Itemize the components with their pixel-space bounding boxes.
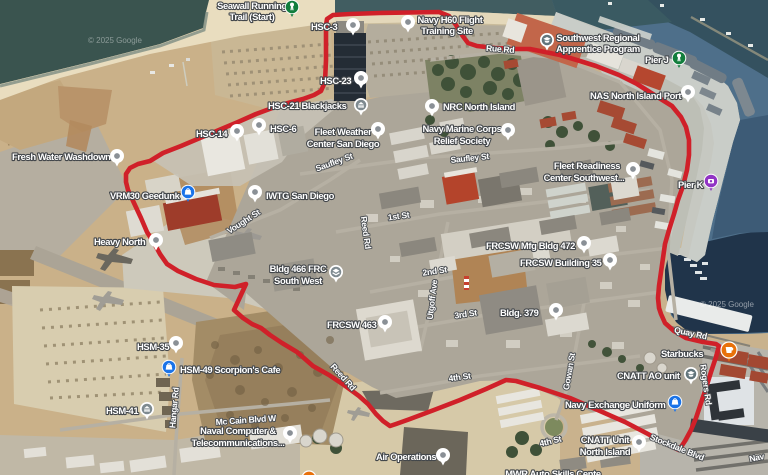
svg-text:HSM-35: HSM-35	[137, 341, 169, 352]
svg-text:Pier K: Pier K	[678, 179, 704, 190]
svg-text:Air Operations: Air Operations	[376, 451, 436, 462]
svg-text:HSC-23: HSC-23	[320, 75, 351, 86]
svg-text:© 2025 Google: © 2025 Google	[88, 36, 142, 45]
svg-text:Bldg 466 FRC: Bldg 466 FRC	[270, 263, 327, 274]
svg-text:Naval Computer &: Naval Computer &	[200, 425, 276, 436]
svg-text:Relief Society: Relief Society	[434, 135, 492, 146]
svg-text:NRC North Island: NRC North Island	[443, 101, 516, 112]
svg-text:IWTG San Diego: IWTG San Diego	[266, 190, 335, 201]
svg-text:Starbucks: Starbucks	[661, 348, 703, 359]
svg-text:Heavy North: Heavy North	[94, 236, 146, 247]
svg-text:HSC-3: HSC-3	[311, 21, 338, 32]
svg-text:Fleet Readiness: Fleet Readiness	[554, 160, 620, 171]
svg-text:HSM-41: HSM-41	[106, 405, 138, 416]
svg-text:Center Southwest...: Center Southwest...	[544, 172, 625, 183]
svg-text:HSC-6: HSC-6	[270, 123, 297, 134]
svg-text:© 2025 Google: © 2025 Google	[700, 300, 754, 309]
svg-text:NAS North Island Port: NAS North Island Port	[590, 90, 681, 101]
svg-text:VRM30 Geedunk: VRM30 Geedunk	[110, 190, 181, 201]
svg-text:South West: South West	[274, 275, 322, 286]
svg-text:Center San Diego: Center San Diego	[307, 138, 380, 149]
svg-text:MWR Auto Skills Cente: MWR Auto Skills Cente	[505, 468, 601, 475]
svg-text:North Island: North Island	[580, 446, 631, 457]
svg-text:Apprentice Program: Apprentice Program	[556, 43, 640, 54]
svg-text:FRCSW Mfg Bldg 472: FRCSW Mfg Bldg 472	[486, 240, 575, 251]
svg-text:Seawall Running: Seawall Running	[217, 0, 287, 11]
svg-text:CNATT Unit: CNATT Unit	[581, 434, 630, 445]
svg-text:Navy H60 Flight: Navy H60 Flight	[417, 14, 482, 25]
svg-text:Trail (Start): Trail (Start)	[230, 11, 275, 22]
svg-text:HSC-21 Blackjacks: HSC-21 Blackjacks	[268, 100, 347, 111]
svg-text:Rue Rd: Rue Rd	[486, 43, 515, 55]
svg-text:Telecommunications...: Telecommunications...	[191, 437, 284, 448]
svg-text:HSC-14: HSC-14	[196, 128, 228, 139]
svg-text:FRCSW 463: FRCSW 463	[327, 319, 377, 330]
svg-text:Navy Exchange Uniform: Navy Exchange Uniform	[565, 399, 666, 410]
svg-text:FRCSW Building 35: FRCSW Building 35	[520, 257, 602, 268]
svg-text:Bldg. 379: Bldg. 379	[500, 307, 539, 318]
svg-text:Training Site: Training Site	[421, 25, 473, 36]
svg-text:Pier J: Pier J	[645, 54, 669, 65]
svg-text:Southwest Regional: Southwest Regional	[556, 32, 639, 43]
svg-text:Fleet Weather: Fleet Weather	[315, 126, 372, 137]
svg-text:HSM-49 Scorpion's Cafe: HSM-49 Scorpion's Cafe	[180, 364, 280, 375]
svg-text:Navy Marine Corps: Navy Marine Corps	[423, 123, 502, 134]
svg-text:CNATT AO unit: CNATT AO unit	[617, 370, 680, 381]
svg-text:Fresh Water Washdown: Fresh Water Washdown	[12, 151, 111, 162]
